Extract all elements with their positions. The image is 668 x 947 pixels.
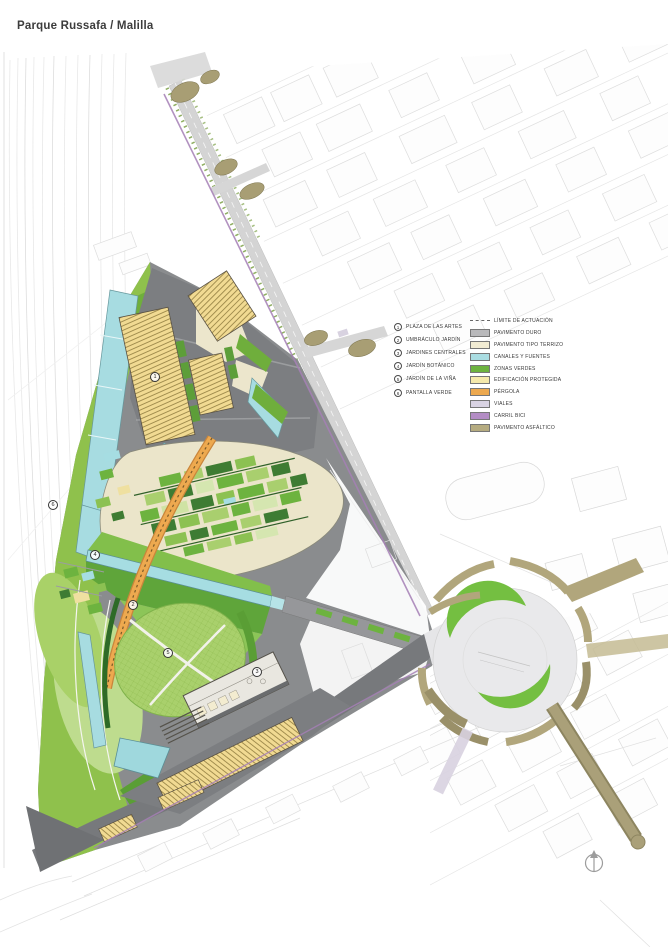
color-swatch bbox=[470, 400, 490, 408]
legend-number-badge: 1 bbox=[394, 323, 402, 331]
legend-swatch-terrizo: PAVIMENTO TIPO TERRIZO bbox=[470, 339, 563, 351]
legend-number-badge: 4 bbox=[394, 362, 402, 370]
legend-numbered-column: 1 PLAZA DE LAS ARTES 2 UMBRÁCULO JARDÍN … bbox=[394, 320, 466, 399]
legend-swatch-column: LÍMITE DE ACTUACIÓN PAVIMENTO DURO PAVIM… bbox=[470, 315, 563, 434]
legend-swatch-asfaltico: PAVIMENTO ASFÁLTICO bbox=[470, 422, 563, 434]
legend-item-2: 2 UMBRÁCULO JARDÍN bbox=[394, 333, 466, 346]
legend-item-5: 5 JARDÍN DE LA VIÑA bbox=[394, 373, 466, 386]
legend-number-badge: 6 bbox=[394, 389, 402, 397]
plan-marker-1: 1 bbox=[150, 372, 160, 382]
color-swatch bbox=[470, 341, 490, 349]
color-swatch bbox=[470, 329, 490, 337]
site-plan-page: Parque Russafa / Malilla 1 2 3 4 5 6 1 P… bbox=[0, 0, 668, 947]
legend-number-badge: 3 bbox=[394, 349, 402, 357]
dashed-line-swatch bbox=[470, 320, 490, 321]
legend-item-4: 4 JARDÍN BOTÁNICO bbox=[394, 360, 466, 373]
legend-item-1: 1 PLAZA DE LAS ARTES bbox=[394, 320, 466, 333]
legend-swatch-canales: CANALES Y FUENTES bbox=[470, 351, 563, 363]
site-plan-drawing bbox=[0, 0, 668, 947]
color-swatch bbox=[470, 424, 490, 432]
legend-swatch-viales: VIALES bbox=[470, 398, 563, 410]
plan-marker-6: 6 bbox=[48, 500, 58, 510]
legend-swatch-zonas-verdes: ZONAS VERDES bbox=[470, 363, 563, 375]
plan-marker-3: 3 bbox=[252, 667, 262, 677]
context-blocks-west bbox=[93, 232, 151, 275]
legend-number-badge: 2 bbox=[394, 336, 402, 344]
legend-swatch-carril-bici: CARRIL BICI bbox=[470, 410, 563, 422]
plan-title: Parque Russafa / Malilla bbox=[17, 20, 153, 32]
legend-swatch-limite: LÍMITE DE ACTUACIÓN bbox=[470, 315, 563, 327]
color-swatch bbox=[470, 365, 490, 373]
color-swatch bbox=[470, 388, 490, 396]
color-swatch bbox=[470, 412, 490, 420]
legend-swatch-pavimento-duro: PAVIMENTO DURO bbox=[470, 327, 563, 339]
plan-marker-4: 4 bbox=[90, 550, 100, 560]
legend-item-6: 6 PANTALLA VERDE bbox=[394, 386, 466, 399]
legend-item-3: 3 JARDINES CENTRALES bbox=[394, 346, 466, 359]
color-swatch bbox=[470, 376, 490, 384]
plan-marker-5: 5 bbox=[163, 648, 173, 658]
legend-swatch-pergola: PÉRGOLA bbox=[470, 386, 563, 398]
legend-swatch-edificacion: EDIFICACIÓN PROTEGIDA bbox=[470, 374, 563, 386]
north-arrow-icon bbox=[586, 850, 603, 872]
plan-marker-2: 2 bbox=[128, 600, 138, 610]
legend-number-badge: 5 bbox=[394, 375, 402, 383]
color-swatch bbox=[470, 353, 490, 361]
